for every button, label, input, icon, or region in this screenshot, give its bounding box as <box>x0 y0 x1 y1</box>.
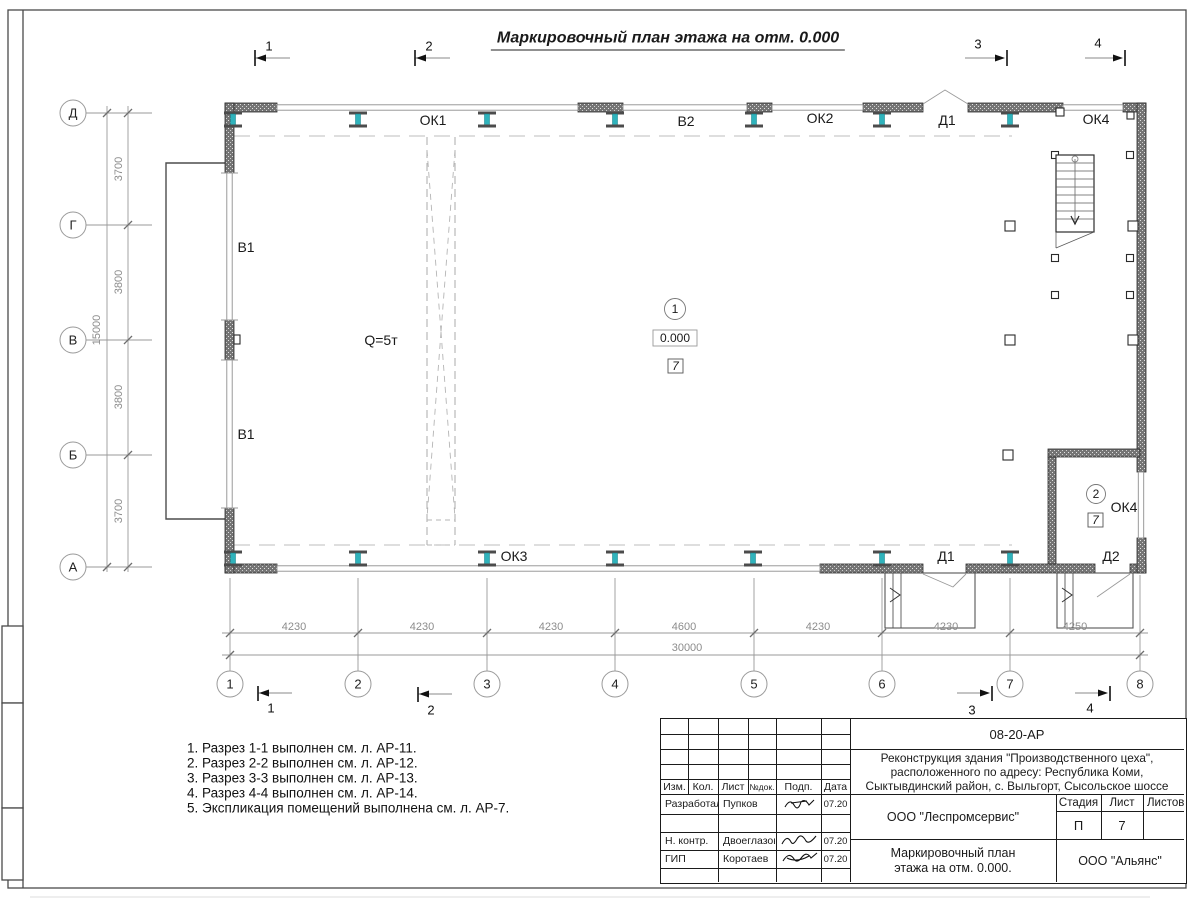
dim-col-6: 4230 <box>934 621 958 633</box>
axis-col-6: 6 <box>878 677 885 692</box>
label-window-v2: В2 <box>677 113 694 129</box>
axis-col-8: 8 <box>1136 677 1143 692</box>
tb-sheet-label: Лист <box>1101 794 1143 811</box>
label-door-d2: Д2 <box>1102 548 1119 564</box>
room1-number: 1 <box>672 302 679 316</box>
signature-icon <box>776 848 821 868</box>
tb-drawing-title: Маркировочный план этажа на отм. 0.000. <box>850 839 1056 882</box>
axis-col-2: 2 <box>354 677 361 692</box>
note-3: 3. Разрез 3-3 выполнен см. л. АР-13. <box>187 771 418 786</box>
crane-runway <box>427 137 455 545</box>
room2-number: 2 <box>1093 487 1100 501</box>
tb-name-ncontrol: Двоеглазов <box>720 832 775 850</box>
section-mark-3-top: 3 <box>974 37 981 52</box>
dim-row-total: 15000 <box>91 315 103 346</box>
tb-stage-label: Стадия <box>1056 794 1101 811</box>
tb-line <box>661 734 850 735</box>
tb-doc-number: 08-20-АР <box>850 719 1184 749</box>
porches <box>885 573 1133 628</box>
room1-finish-tag: 7 <box>672 359 679 373</box>
dim-row-2: 3800 <box>113 270 125 294</box>
tb-date-gip: 07.20 <box>821 850 850 868</box>
dim-row-1: 3700 <box>113 157 125 181</box>
tb-role-ncontrol: Н. контр. <box>662 832 718 850</box>
note-5: 5. Экспликация помещений выполнена см. л… <box>187 801 509 816</box>
tb-rev-list: Лист <box>718 779 748 794</box>
note-2: 2. Разрез 2-2 выполнен см. л. АР-12. <box>187 756 418 771</box>
annex-outline <box>166 163 227 519</box>
label-window-ok1: ОК1 <box>420 112 447 128</box>
axis-row-a: А <box>69 560 78 575</box>
label-crane-capacity: Q=5т <box>364 332 397 348</box>
room2-finish-tag: 7 <box>1092 513 1099 527</box>
tb-stage-value: П <box>1056 811 1101 839</box>
tb-contractor: ООО "Леспромсервис" <box>850 794 1056 839</box>
tb-line <box>718 719 719 882</box>
tb-client: ООО "Альянс" <box>1056 839 1184 882</box>
title-block: Изм. Кол. Лист №док. Подп. Дата 08-20-АР… <box>660 718 1187 884</box>
dim-col-4: 4600 <box>672 621 696 633</box>
room1-level-mark: 0.000 <box>660 331 690 345</box>
axis-row-v: В <box>69 333 78 348</box>
dim-col-7: 4250 <box>1063 621 1087 633</box>
signature-icon <box>776 830 821 850</box>
tb-line <box>661 749 850 750</box>
label-window-ok4-room: ОК4 <box>1111 499 1138 515</box>
axis-row-d: Д <box>69 106 78 121</box>
tb-rev-data: Дата <box>821 779 850 794</box>
label-door-d1-bottom: Д1 <box>937 548 954 564</box>
dim-col-total: 30000 <box>672 642 703 654</box>
tb-rev-kol: Кол. <box>688 779 718 794</box>
drawing-sheet: Маркировочный план этажа на отм. 0.000 Д… <box>0 0 1200 900</box>
tb-name-developer: Пупков <box>720 794 775 814</box>
axis-col-1: 1 <box>226 677 233 692</box>
section-marks <box>255 50 1125 702</box>
tb-drawing-title-text: Маркировочный план этажа на отм. 0.000. <box>873 846 1033 876</box>
section-mark-1-bottom: 1 <box>267 701 274 716</box>
tb-role-developer: Разработал <box>662 794 718 814</box>
tb-rev-ndok: №док. <box>748 779 776 794</box>
tb-rev-podp: Подп. <box>776 779 821 794</box>
label-window-v1-lower: В1 <box>237 426 254 442</box>
section-mark-2-bottom: 2 <box>427 703 434 718</box>
tb-line <box>661 814 850 815</box>
label-door-d1-top: Д1 <box>938 112 955 128</box>
axis-col-3: 3 <box>483 677 490 692</box>
axis-col-4: 4 <box>611 677 618 692</box>
axis-row-g: Г <box>69 218 76 233</box>
tb-line <box>661 764 850 765</box>
note-4: 4. Разрез 4-4 выполнен см. л. АР-14. <box>187 786 418 801</box>
tb-sheets-label: Листов <box>1143 794 1184 811</box>
tb-sheet-number: 7 <box>1101 811 1143 839</box>
axis-col-7: 7 <box>1006 677 1013 692</box>
tb-name-gip: Коротаев <box>720 850 775 868</box>
dim-row-4: 3700 <box>113 499 125 523</box>
tb-line <box>661 868 850 869</box>
room-markers <box>653 299 1106 528</box>
tb-rev-izm: Изм. <box>661 779 688 794</box>
interior-piers <box>234 108 1138 460</box>
axis-row-b: Б <box>69 448 78 463</box>
sheet-title: Маркировочный план этажа на отм. 0.000 <box>491 30 845 51</box>
roof-dashed-lines <box>234 136 1012 545</box>
label-window-v1-upper: В1 <box>237 239 254 255</box>
dim-col-2: 4230 <box>410 621 434 633</box>
label-window-ok4-top: ОК4 <box>1083 111 1110 127</box>
section-mark-4-top: 4 <box>1094 36 1101 51</box>
note-1: 1. Разрез 1-1 выполнен см. л. АР-11. <box>187 741 417 756</box>
axis-col-5: 5 <box>750 677 757 692</box>
section-mark-1-top: 1 <box>265 39 272 54</box>
tb-date-developer: 07.20 <box>821 794 850 814</box>
column-ibeams <box>224 112 1019 567</box>
section-mark-2-top: 2 <box>425 39 432 54</box>
tb-date-ncontrol: 07.20 <box>821 832 850 850</box>
label-window-ok3: ОК3 <box>501 548 528 564</box>
section-mark-3-bottom: 3 <box>968 703 975 718</box>
signature-icon <box>776 794 821 814</box>
dim-col-1: 4230 <box>282 621 306 633</box>
label-window-ok2: ОК2 <box>807 110 834 126</box>
section-mark-4-bottom: 4 <box>1086 701 1093 716</box>
dim-col-5: 4230 <box>806 621 830 633</box>
tb-role-gip: ГИП <box>662 850 718 868</box>
staircase <box>1056 155 1094 248</box>
tb-project-description: Реконструкция здания "Производственного … <box>850 749 1184 794</box>
dim-col-3: 4230 <box>539 621 563 633</box>
dim-row-3: 3800 <box>113 385 125 409</box>
